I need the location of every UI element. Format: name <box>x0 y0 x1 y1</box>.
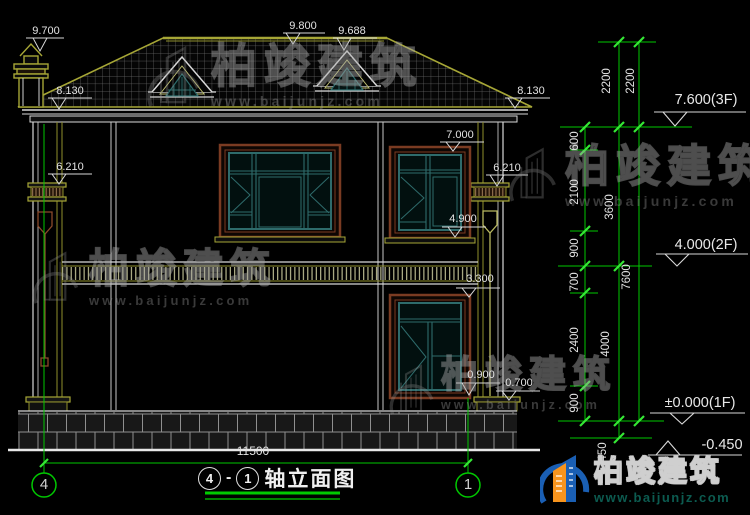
capital-left <box>28 183 66 201</box>
cad-elevation-canvas: 柏竣建筑 www.baijunjz.com 柏竣建筑 www.baijunjz.… <box>0 0 750 515</box>
elev-ridge: 9.800 <box>281 19 325 33</box>
window-2f-right <box>385 147 475 243</box>
capital-right <box>471 183 509 201</box>
belt-course <box>62 262 478 284</box>
brand-logo-icon <box>540 450 590 512</box>
dim-700: 700 <box>567 250 583 314</box>
pendant-left <box>38 212 52 366</box>
axis-bubble-1: 1 <box>456 476 480 494</box>
level-1f: ±0.000(1F) <box>654 395 746 412</box>
elev-eave-left: 8.130 <box>48 84 92 98</box>
dim-2200-inner: 2200 <box>599 49 615 113</box>
elev-dormer-top: 9.688 <box>330 24 374 38</box>
roof <box>18 38 532 107</box>
pedestal-left <box>26 397 70 411</box>
title-dash: - <box>226 469 231 487</box>
pedestal-right <box>474 397 520 411</box>
level-2f: 4.000(2F) <box>660 237 750 254</box>
dim-4000: 4000 <box>598 312 614 376</box>
window-2f-center <box>215 145 345 242</box>
title-axis-left: 4 <box>198 467 221 490</box>
elev-chimney-top: 9.700 <box>24 24 68 38</box>
elev-win1f-head: 3.300 <box>458 272 502 286</box>
elev-win2f-sill: 4.900 <box>441 212 485 226</box>
elev-capital-right: 6.210 <box>485 161 529 175</box>
eave-cornice <box>22 110 528 122</box>
level-3f: 7.600(3F) <box>660 92 750 109</box>
dim-7600: 7600 <box>619 245 635 309</box>
dim-900b: 900 <box>567 371 583 435</box>
dim-2400: 2400 <box>567 308 583 372</box>
elev-win2f-head: 7.000 <box>438 128 482 142</box>
axis-bubble-4: 4 <box>32 476 56 494</box>
dim-2100: 2100 <box>567 160 583 224</box>
dim-11500: 11500 <box>223 444 283 458</box>
logo-url: www.baijunjz.com <box>594 490 730 505</box>
title-axis-right: 1 <box>236 467 259 490</box>
chimney <box>14 44 48 107</box>
drawing-title: 4 - 1 轴立面图 <box>198 463 356 493</box>
elev-capital-left: 6.210 <box>48 160 92 174</box>
title-underline <box>205 493 340 499</box>
dim-2200-outer: 2200 <box>623 49 639 113</box>
title-text: 轴立面图 <box>264 463 356 493</box>
brand-logo: 柏竣建筑 www.baijunjz.com <box>540 450 730 512</box>
logo-brand: 柏竣建筑 <box>594 457 730 487</box>
elev-pedestal-top: 0.700 <box>497 376 541 390</box>
dim-3600: 3600 <box>602 175 618 239</box>
elev-eave-right: 8.130 <box>509 84 553 98</box>
